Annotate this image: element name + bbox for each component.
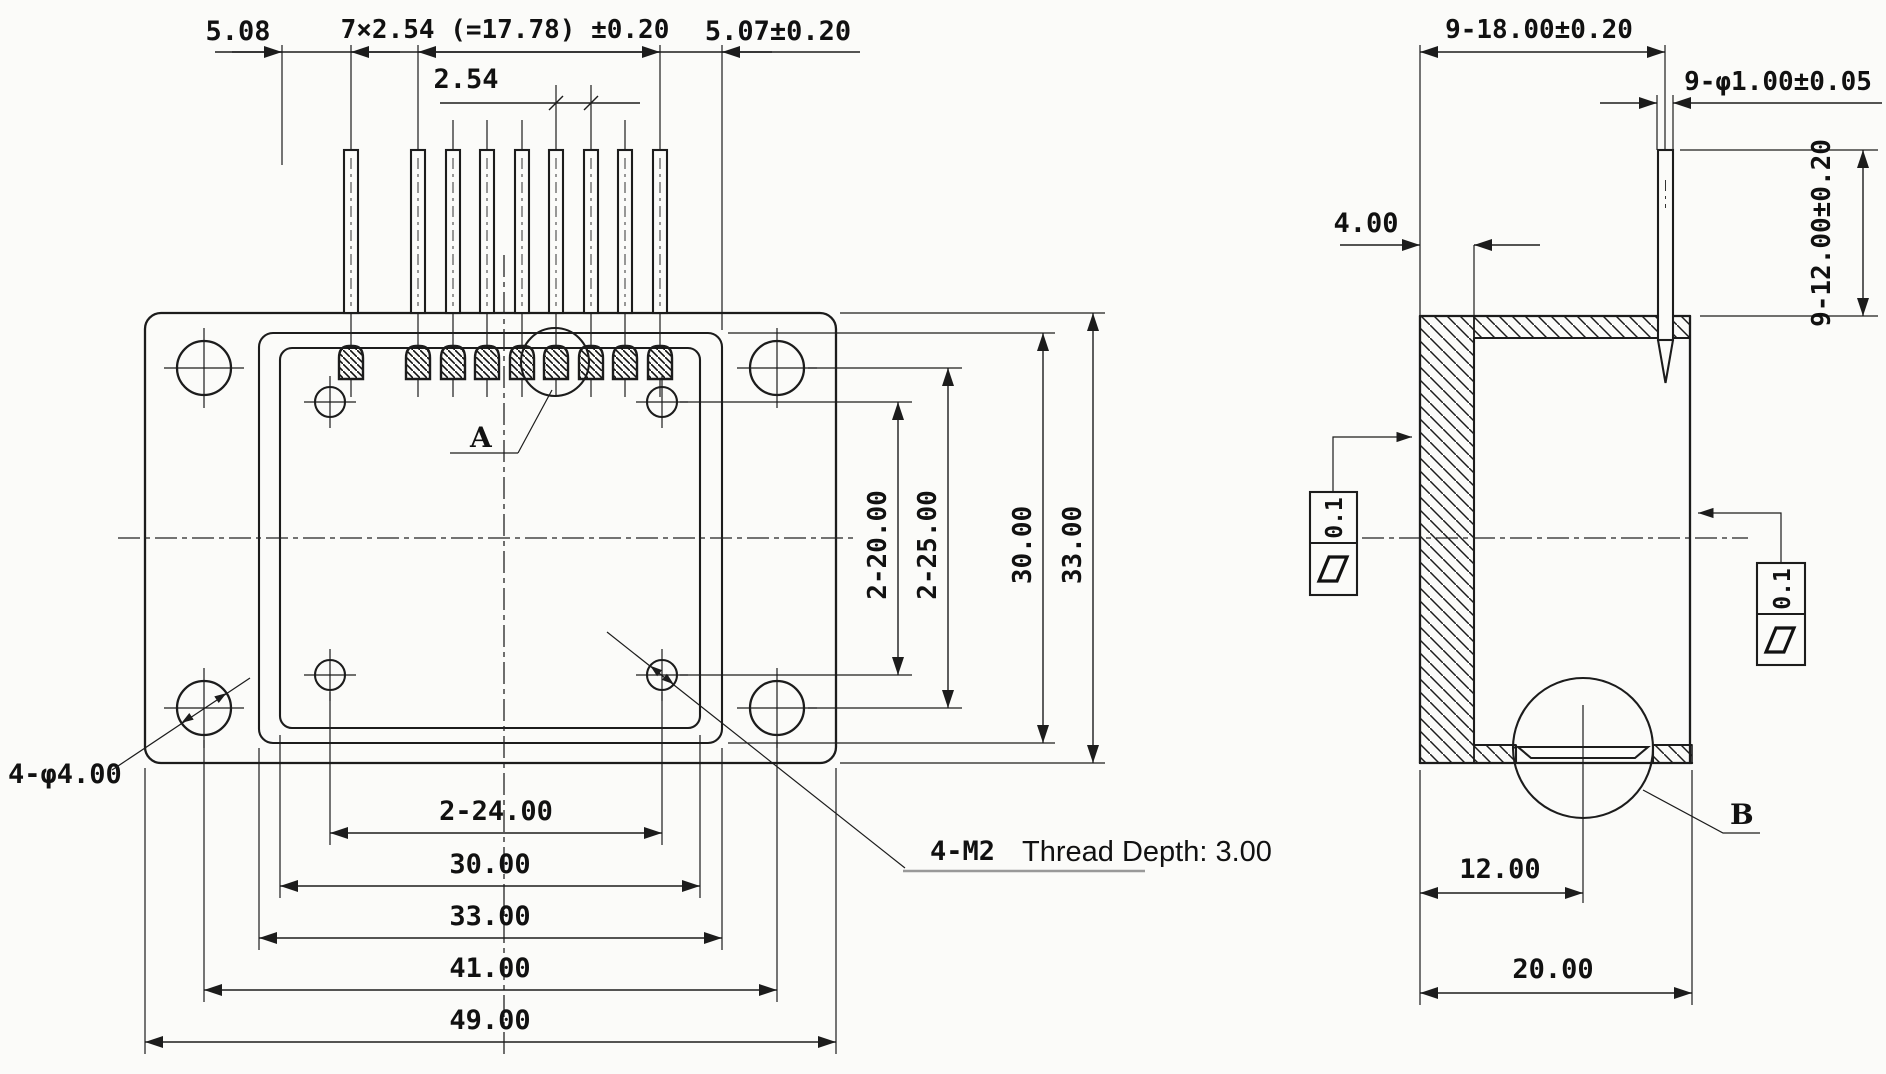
mount-hole (737, 328, 817, 408)
pin-row (339, 120, 672, 397)
pin (475, 150, 499, 397)
thread-hole-leader: 4-M2 Thread Depth: 3.00 (607, 632, 1272, 871)
drawing-canvas: A 5.08 7×2.54 (=17.78) ±0.20 2.54 5.07±0… (0, 0, 1886, 1074)
flatness-symbol-icon (1766, 628, 1794, 652)
pin (406, 150, 430, 397)
detail-a-label: A (469, 421, 493, 454)
detail-b-label: B (1730, 798, 1754, 831)
mount-holes-label: 4-φ4.00 (8, 759, 122, 790)
left-view-right-dimensions: 2-20.00 2-25.00 30.00 33.00 (680, 313, 1105, 763)
dim-wall-thickness: 4.00 (1333, 208, 1398, 239)
mount-hole (737, 668, 817, 748)
dim-flange-height: 33.00 (1058, 506, 1088, 584)
bottom-strip-section (1653, 745, 1692, 763)
tolerance-frame-left: 0.1 (1310, 437, 1412, 595)
pin (544, 150, 568, 397)
dim-mount-spacing-h: 41.00 (449, 953, 530, 984)
dim-pin-protrusion: 9-12.00±0.20 (1807, 139, 1837, 327)
tolerance-value: 0.1 (1770, 568, 1796, 610)
left-view-top-dimensions: 5.08 7×2.54 (=17.78) ±0.20 2.54 5.07±0.2… (205, 15, 860, 330)
dim-offset-left: 5.08 (205, 16, 270, 47)
right-view-section: B (1362, 150, 1760, 903)
dim-thread-spacing-h: 2-24.00 (439, 796, 553, 827)
dim-body-height: 30.00 (1008, 506, 1038, 584)
pin (648, 150, 672, 397)
pin (579, 150, 603, 397)
section-pin (1658, 150, 1673, 383)
pin (613, 150, 637, 397)
left-wall-section (1420, 316, 1474, 763)
leader-arrow (214, 693, 226, 703)
dim-pin-diameter: 9-φ1.00±0.05 (1684, 67, 1872, 97)
dim-overall-depth: 20.00 (1512, 954, 1593, 985)
dim-thread-spacing-v: 2-20.00 (863, 490, 893, 600)
left-view-bottom-dimensions: 2-24.00 30.00 33.00 41.00 49.00 (145, 692, 836, 1054)
dim-body-width: 33.00 (449, 901, 530, 932)
dim-window-offset: 12.00 (1459, 854, 1540, 885)
thread-depth-note: Thread Depth: 3.00 (1022, 836, 1272, 868)
bottom-strip-section (1474, 745, 1516, 763)
leader-arrow (182, 713, 194, 723)
tolerance-value: 0.1 (1322, 497, 1348, 539)
tolerance-frame-right: 0.1 (1698, 513, 1805, 665)
pin (441, 150, 465, 397)
right-view-dimensions: 9-18.00±0.20 9-φ1.00±0.05 9-12.00±0.20 4… (1333, 15, 1882, 1005)
mount-hole (164, 328, 244, 408)
dim-flange-width: 49.00 (449, 1005, 530, 1036)
dim-pitch-total: 7×2.54 (=17.78) ±0.20 (341, 15, 670, 45)
pin (339, 150, 363, 397)
dim-pin-row-span: 9-18.00±0.20 (1445, 15, 1633, 45)
dim-cavity-width: 30.00 (449, 849, 530, 880)
dim-offset-right: 5.07±0.20 (705, 16, 851, 47)
flatness-symbol-icon (1319, 557, 1347, 581)
dim-mount-spacing-v: 2-25.00 (913, 490, 943, 600)
engineering-drawing: A 5.08 7×2.54 (=17.78) ±0.20 2.54 5.07±0… (0, 0, 1886, 1074)
thread-hole (304, 376, 356, 428)
dim-pitch-single: 2.54 (433, 64, 498, 95)
thread-holes-label: 4-M2 (930, 836, 995, 867)
